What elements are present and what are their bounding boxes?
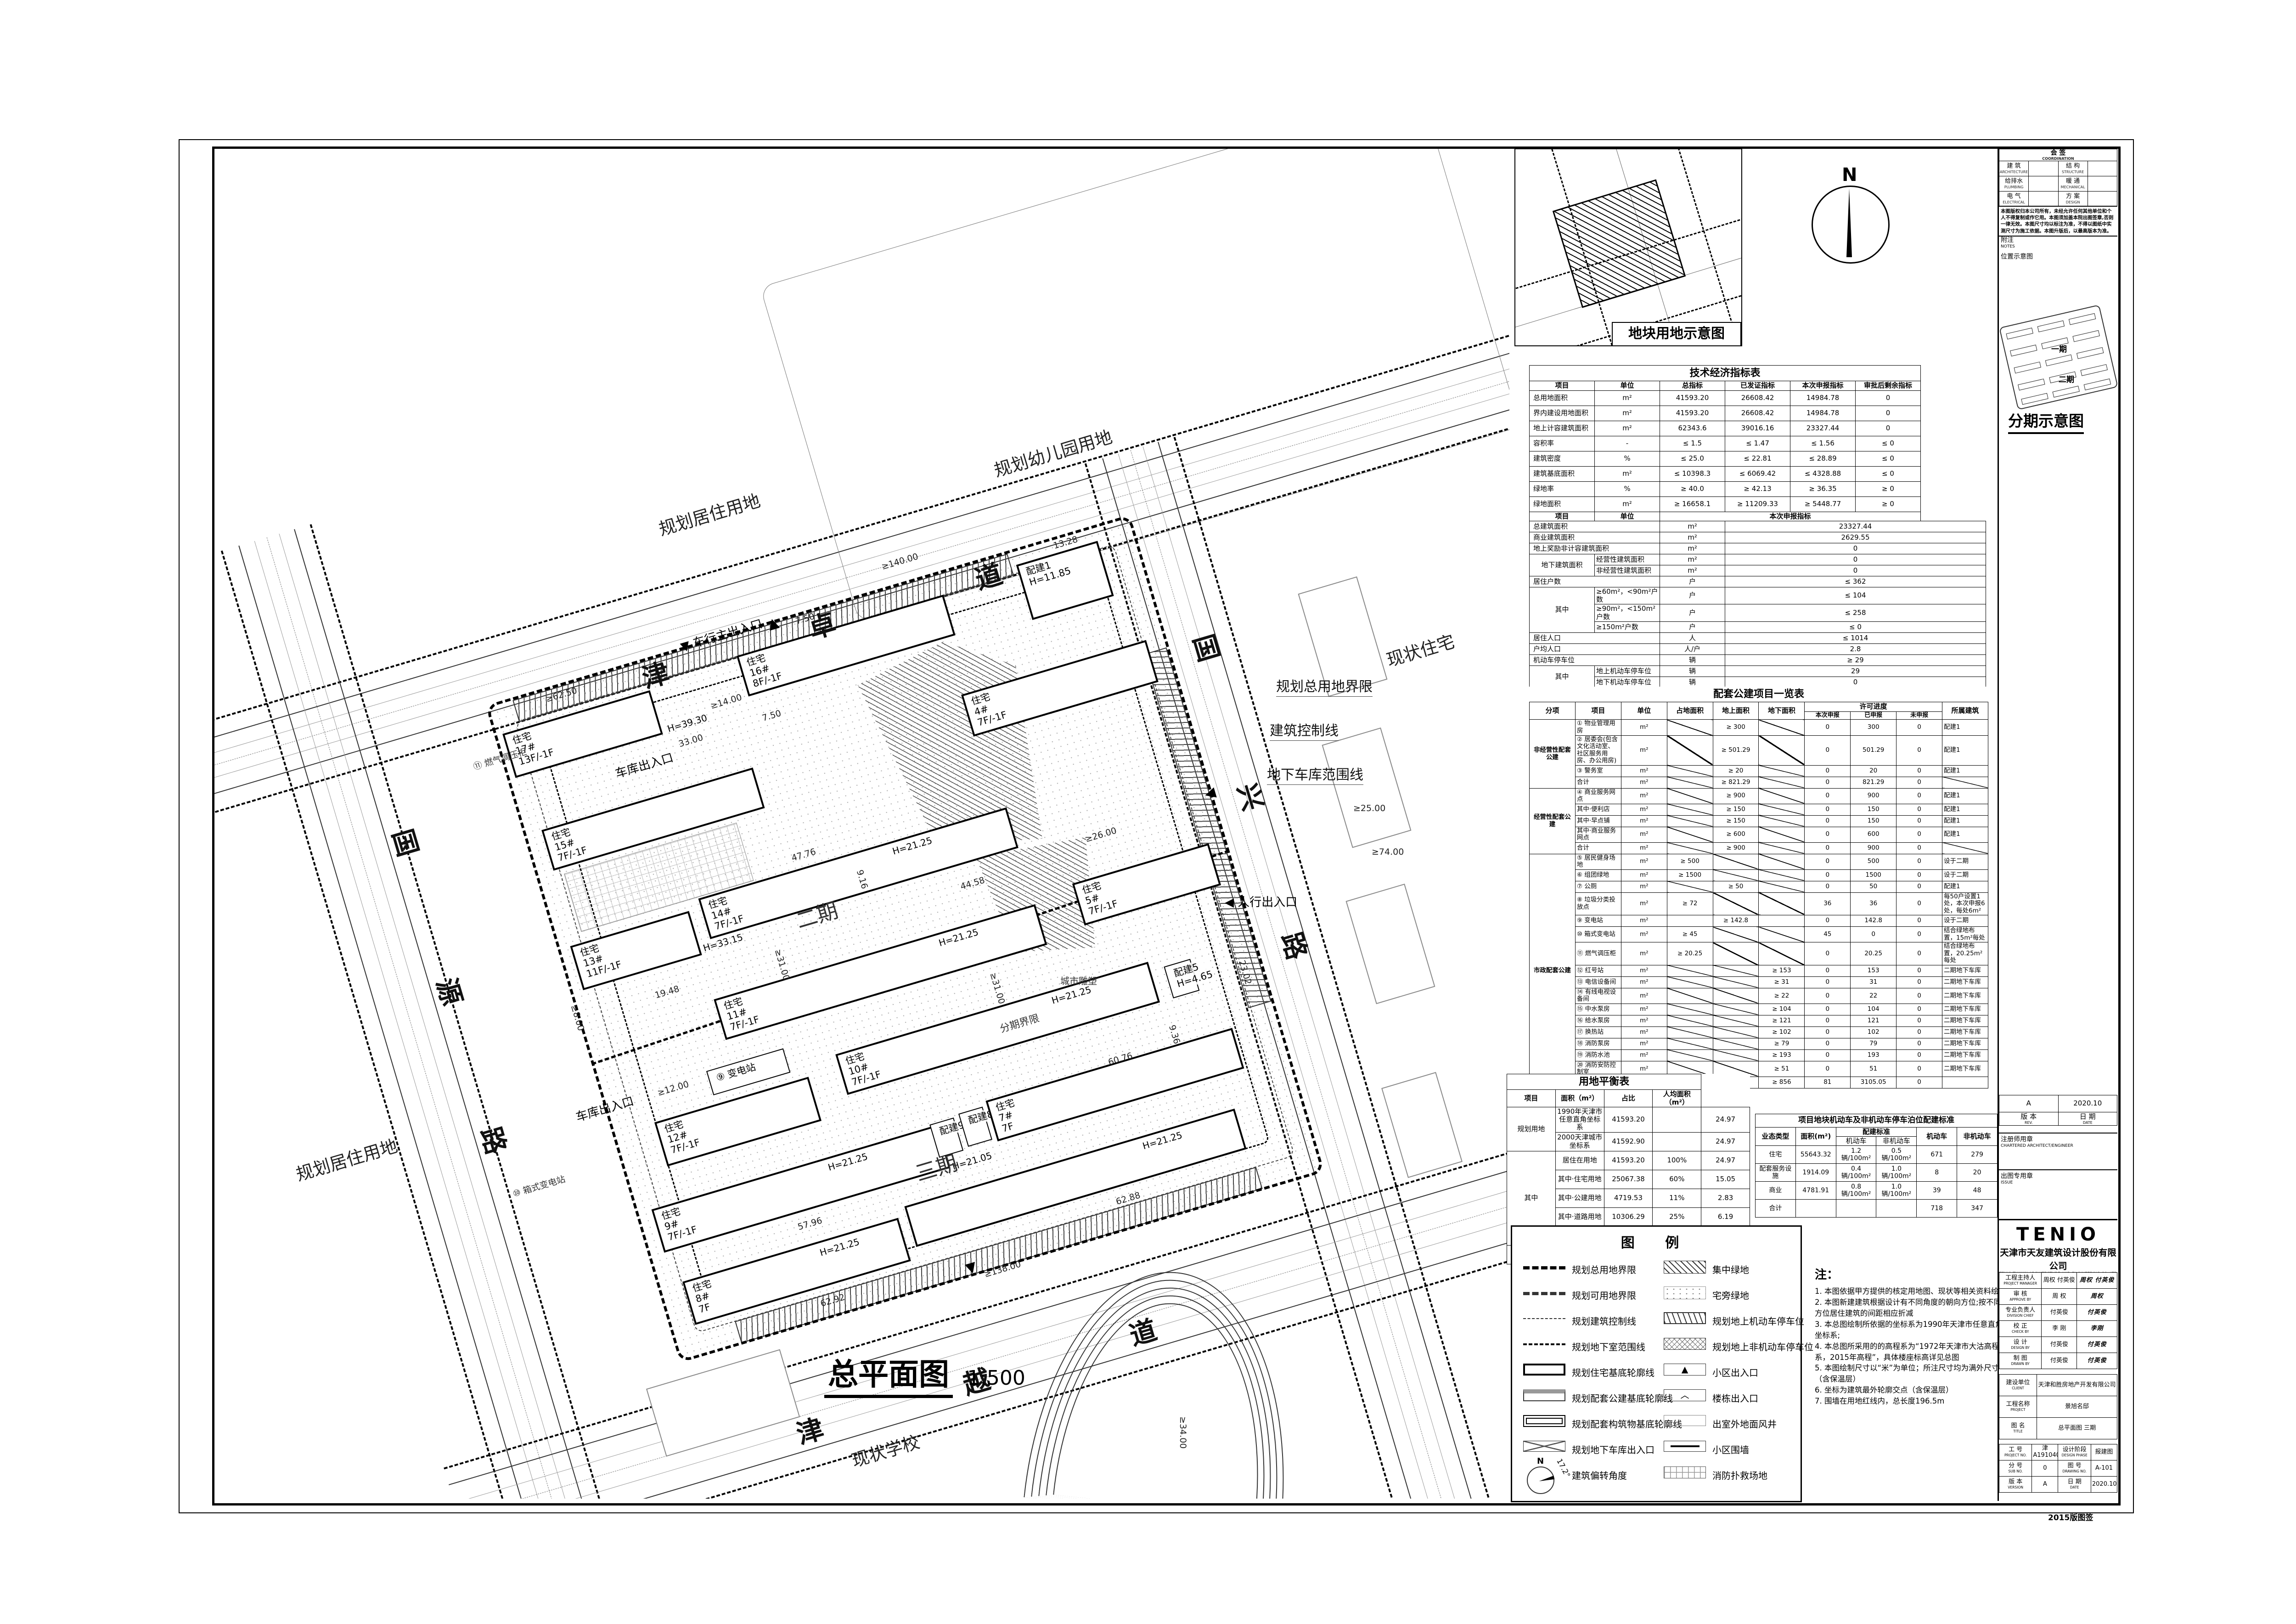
- location-diagram-title: 地块用地示意图: [1612, 322, 1741, 346]
- mini-building: [2014, 361, 2041, 373]
- weizhi-label: 位置示意图: [1999, 251, 2117, 262]
- leader-label-2: 地下车库范围线: [1267, 763, 1363, 785]
- misc-label-3: 城市雕塑: [1060, 974, 1097, 987]
- mini-building: [2037, 321, 2065, 333]
- existing-building: [1322, 727, 1412, 848]
- parking-standard-table: 项目地块机动车及非机动车停车泊位配建标准业态类型面积(m²)配建标准机动车非机动…: [1755, 1114, 1998, 1218]
- res-icon: [1523, 1364, 1565, 1376]
- legend-title: 图 例: [1512, 1227, 1801, 1254]
- note-item: 4. 本总图所采用的的高程系为“1972年天津市大沽高程系，2015年高程”，具…: [1815, 1341, 2008, 1363]
- mini-building: [2084, 378, 2111, 390]
- area-label-3: 现状住宅: [1383, 627, 1457, 671]
- leader-label-0: 规划总用地界限: [1276, 675, 1373, 697]
- issue-stamp-area: 出图专用章ISSUE: [1999, 1169, 2117, 1186]
- coordination-table: 会 签COORDINATION建 筑ARCHITECTURE结 构STRUCTU…: [1999, 149, 2117, 207]
- note-item: 3. 本总图绘制所依据的坐标系为1990年天津市任意直角坐标系;: [1815, 1319, 2008, 1341]
- notes-title: 注：: [1815, 1265, 2008, 1282]
- note-item: 5. 本图绘制尺寸以“米”为单位；所注尺寸均为满外尺寸（含保温层）: [1815, 1363, 2008, 1385]
- green-h-icon: [1664, 1286, 1706, 1299]
- legend-item-label: 出室外地面风井: [1712, 1417, 1777, 1430]
- facilities-table: 配套公建项目一览表分项项目单位占地面积地上面积地下面积许可进度所属建筑本次申报已…: [1529, 687, 1988, 1088]
- park-n-icon: [1664, 1338, 1706, 1350]
- title-block-strip: 会 签COORDINATION建 筑ARCHITECTURE结 构STRUCTU…: [1998, 149, 2117, 1501]
- notes: 注： 1. 本图依据甲方提供的核定用地图、现状等相关资料绘制2. 本图新建建筑根…: [1815, 1265, 2008, 1481]
- leader-label-1: 建筑控制线: [1270, 719, 1339, 741]
- drawing-sheet: 住宅17#13F/-1FH=39.30住宅16#8F/-1F配建1H=11.85…: [0, 0, 2296, 1624]
- legend-item-label: 小区出入口: [1712, 1365, 1758, 1379]
- legend-item-label: 规划地上非机动车停车位: [1712, 1340, 1813, 1353]
- legend-item-label: 规划总用地界限: [1572, 1263, 1636, 1276]
- fields-table: 工 号PROJECT NO.津A191040设计阶段DESIGN PHASE报建…: [1999, 1444, 2117, 1493]
- sheet-stamp-version: 2015版图签: [2048, 1511, 2093, 1522]
- site-plan: 住宅17#13F/-1FH=39.30住宅16#8F/-1F配建1H=11.85…: [214, 149, 1509, 1499]
- copyright-text: 本图版权归本公司所有，未经允许任何其他单位和个人不得复制或作它用。本图须加盖本院…: [1999, 206, 2117, 237]
- gate-label-1: ◀ 人行出入口: [1225, 893, 1297, 910]
- legend-item-label: 建筑偏转角度: [1572, 1468, 1627, 1482]
- fire-icon: [1664, 1466, 1706, 1478]
- mini-building: [2081, 364, 2108, 376]
- legend-item-label: 规划地上机动车停车位: [1712, 1314, 1804, 1327]
- phasing-diagram: 一期 二期: [2003, 303, 2113, 409]
- wall-icon: [1664, 1441, 1706, 1452]
- project-table: 建设单位CLIENT天津和胜房地产开发有限公司工程名称PROJECT景旭名邸图 …: [1999, 1374, 2117, 1439]
- plan-title: 总平面图 1:500: [824, 1350, 1025, 1394]
- legend-item-label: 规划建筑控制线: [1572, 1314, 1636, 1327]
- area-label-2: 规划居住用地: [293, 1132, 400, 1185]
- mini-building: [2021, 393, 2048, 405]
- legend-item-label: 规划地下室范围线: [1572, 1340, 1645, 1353]
- note-item: 6. 坐标为建筑最外轮廓交点（含保温层）: [1815, 1385, 2008, 1396]
- line-ctrl-icon: [1523, 1318, 1565, 1319]
- existing-building: [1346, 884, 1435, 1004]
- mini-building: [2077, 347, 2104, 359]
- line-basement-icon: [1523, 1343, 1565, 1345]
- legend-item-label: 小区围墙: [1712, 1443, 1749, 1456]
- line-thickdash-icon: [1523, 1266, 1565, 1269]
- note-item: 1. 本图依据甲方提供的核定用地图、现状等相关资料绘制: [1815, 1286, 2008, 1297]
- company-name: 天津市天友建筑设计股份有限公司: [1999, 1245, 2117, 1272]
- note-item: 2. 本图新建建筑根据设计有不同角度的朝向方位;按不同方位居住建筑的间距相应折减: [1815, 1297, 2008, 1319]
- mini-building: [2069, 313, 2096, 325]
- location-diagram: [1514, 148, 1742, 346]
- tenio-logo: TENIO: [1999, 1224, 2117, 1245]
- note-item: 7. 围墙在用地红线内，总长度196.5m: [1815, 1396, 2008, 1407]
- mini-building: [2053, 386, 2080, 398]
- legend-item-label: 楼栋出入口: [1712, 1391, 1758, 1404]
- existing-building: [1381, 1072, 1463, 1178]
- area-label-1: 规划居住用地: [655, 486, 763, 540]
- legend-item-label: 规划配套公建基底轮廓线: [1572, 1391, 1673, 1404]
- phase1-label: 一期: [2051, 343, 2067, 354]
- outer-dim-1: ≥74.00: [1372, 847, 1404, 857]
- plan-scale: 1:500: [967, 1366, 1025, 1390]
- ramp-icon: [1523, 1441, 1565, 1452]
- plan-title-text: 总平面图: [824, 1357, 953, 1398]
- outer-dim-2: ≥25.00: [1353, 803, 1385, 813]
- legend: 图 例 规划总用地界限规划可用地界限规划建筑控制线规划地下室范围线规划住宅基底轮…: [1511, 1225, 1802, 1502]
- struct-icon: [1523, 1415, 1565, 1427]
- phasing-diagram-title: 分期示意图: [2008, 409, 2084, 434]
- vent-icon: [1664, 1415, 1706, 1426]
- green-c-icon: [1664, 1261, 1706, 1274]
- north-arrow-icon: N: [1812, 165, 1890, 264]
- location-parcel: [1553, 179, 1686, 308]
- bgate-icon: ︿: [1664, 1389, 1706, 1401]
- legend-item-label: 规划地下车库出入口: [1572, 1443, 1654, 1456]
- legend-item-label: 规划住宅基底轮廓线: [1572, 1365, 1654, 1379]
- line-dashdot-icon: [1523, 1292, 1565, 1295]
- tech-indicator-table: 技术经济指标表项目单位总指标已发证指标本次申报指标审批后剩余指标总用地面积m²4…: [1529, 365, 1986, 732]
- reg-stamp-area: 注册师用章CHARTERED ARCHITECT/ENGINEER: [1999, 1133, 2117, 1149]
- mini-building: [2072, 330, 2099, 342]
- legend-item-label: 集中绿地: [1712, 1263, 1749, 1276]
- park-m-icon: [1664, 1312, 1706, 1324]
- legend-item-label: 规划可用地界限: [1572, 1288, 1636, 1302]
- legend-item-label: 消防扑救场地: [1712, 1468, 1767, 1482]
- phase2-label: 二期: [2059, 373, 2074, 384]
- fuzhu-label: 附注NOTES: [1999, 234, 2117, 250]
- pub-icon: [1523, 1389, 1565, 1401]
- signature-table: 工程主持人PROJECT MANAGER周权 付英俊周权 付英俊审 核APPRO…: [1999, 1272, 2117, 1369]
- gate-icon: ▲: [1664, 1364, 1706, 1376]
- mini-building: [2006, 327, 2033, 339]
- compass-icon: N17.2°: [1523, 1466, 1565, 1494]
- mini-building: [2045, 355, 2072, 367]
- mini-building: [2018, 378, 2045, 390]
- mini-building: [2010, 344, 2037, 356]
- outer-dim-5: ≥34.00: [1178, 1416, 1188, 1449]
- north-label: N: [1842, 164, 1857, 186]
- legend-item-label: 宅旁绿地: [1712, 1288, 1749, 1302]
- revision-table: A2020.10版 本REV.日 期DATE: [1999, 1095, 2117, 1126]
